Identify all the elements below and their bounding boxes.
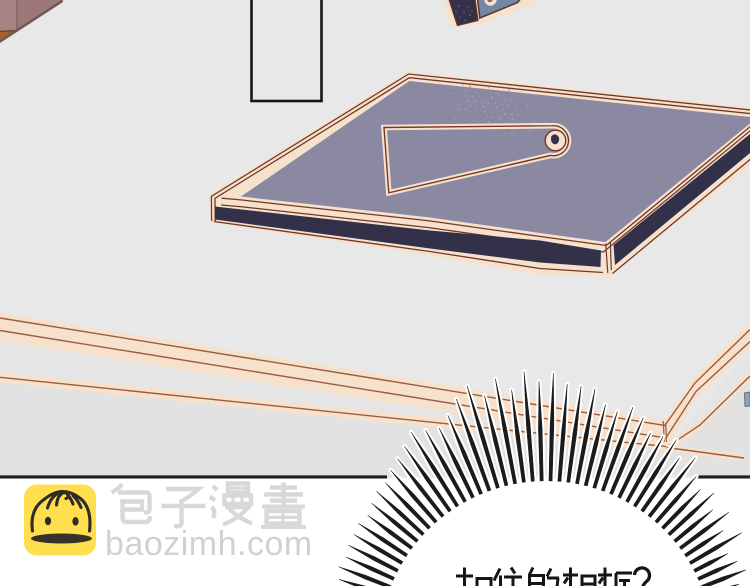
svg-text:baozimh.com: baozimh.com <box>105 525 313 563</box>
